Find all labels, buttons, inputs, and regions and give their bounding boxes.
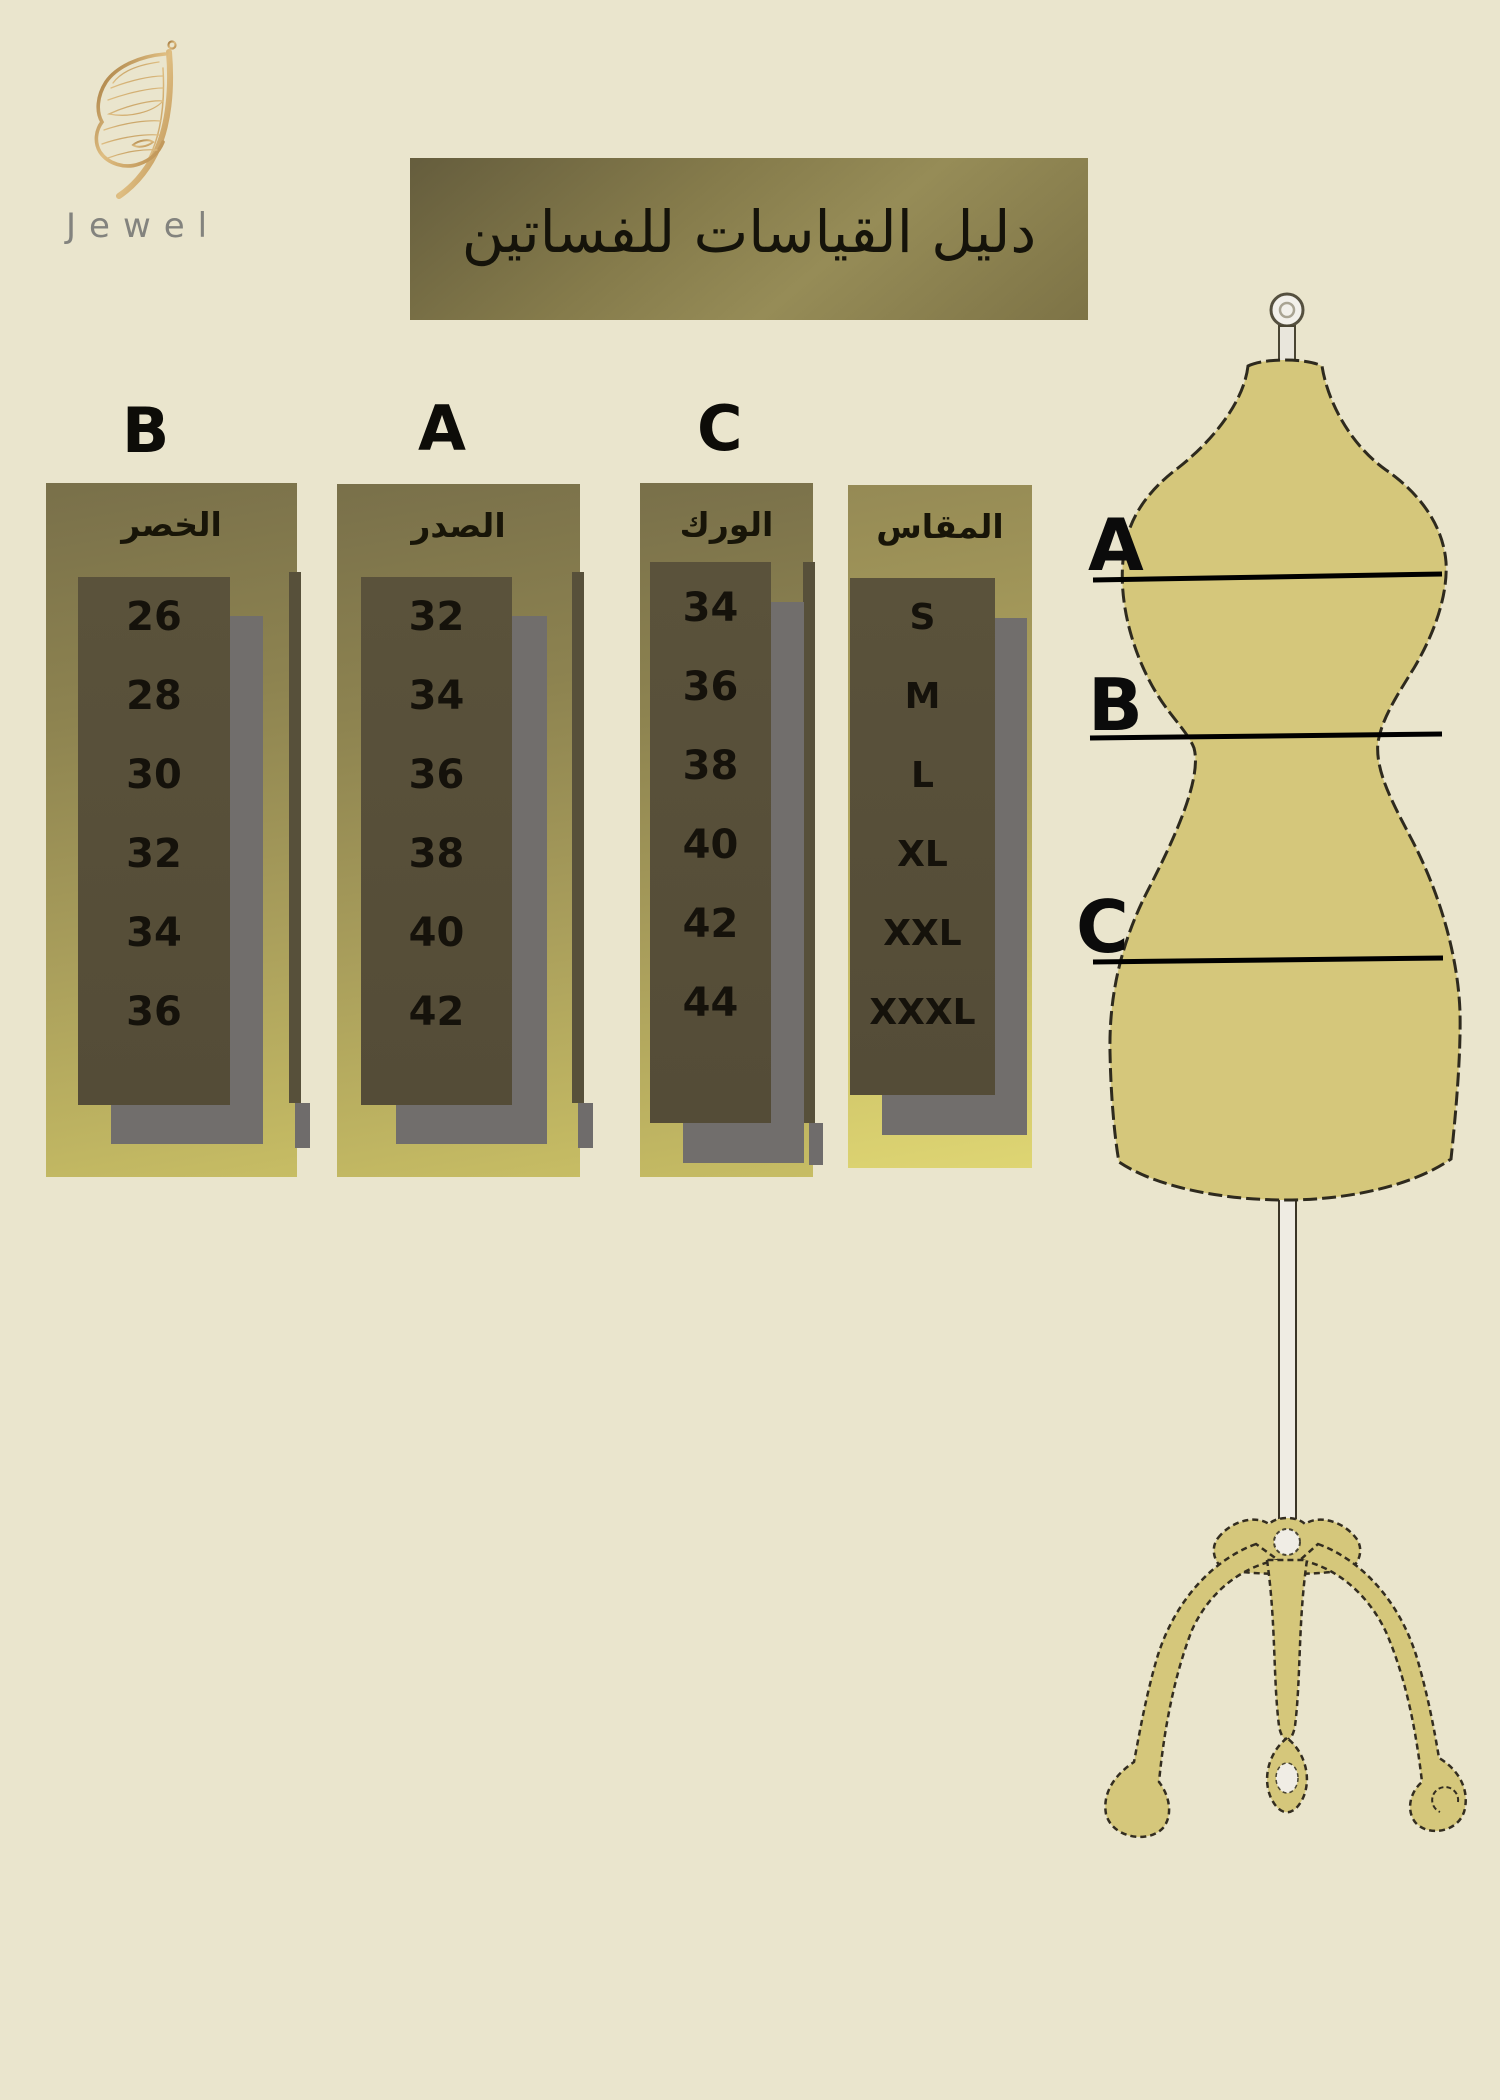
finial-knob-icon	[1271, 294, 1303, 326]
title-banner: دليل القياسات للفساتين	[410, 158, 1088, 320]
size-value: S	[850, 578, 995, 657]
size-value: L	[850, 736, 995, 815]
hip-value: 36	[650, 647, 771, 726]
values-box-size: S M L XL XXL XXXL	[850, 578, 995, 1095]
decor-sliver	[572, 572, 584, 1103]
label-a: A	[1088, 503, 1144, 587]
values-box-bust: 32 34 36 38 40 42	[361, 577, 512, 1105]
waist-value: 32	[78, 814, 230, 893]
waist-value: 36	[78, 972, 230, 1051]
hip-value: 38	[650, 726, 771, 805]
size-value: XL	[850, 815, 995, 894]
stand-pole	[1279, 1185, 1296, 1535]
panel-header-waist: الخصر	[46, 505, 297, 544]
waist-value: 26	[78, 577, 230, 656]
panel-header-bust: الصدر	[337, 506, 580, 545]
values-box-hip: 34 36 38 40 42 44	[650, 562, 771, 1123]
hip-value: 42	[650, 884, 771, 963]
decor-sliver	[295, 1103, 310, 1148]
tripod-leg-left	[1105, 1544, 1278, 1837]
panel-header-hip: الورك	[640, 505, 813, 544]
bust-value: 34	[361, 656, 512, 735]
measurement-panel-waist: الخصر 26 28 30 32 34 36	[46, 483, 297, 1177]
hub-knob	[1274, 1529, 1300, 1555]
measurement-panel-size: المقاس S M L XL XXL XXXL	[848, 485, 1032, 1168]
size-value: XXXL	[850, 973, 995, 1052]
column-letter-a: A	[418, 398, 466, 460]
bust-value: 38	[361, 814, 512, 893]
butterfly-icon	[75, 38, 185, 203]
brand-name: Jewel	[66, 206, 220, 246]
mannequin-illustration: A B C	[1060, 230, 1500, 1900]
bust-value: 40	[361, 893, 512, 972]
waist-value: 30	[78, 735, 230, 814]
bust-value: 36	[361, 735, 512, 814]
bust-value: 42	[361, 972, 512, 1051]
label-b: B	[1088, 663, 1143, 747]
panel-header-size: المقاس	[848, 507, 1032, 546]
label-c: C	[1076, 885, 1129, 969]
waist-value: 28	[78, 656, 230, 735]
measurement-panel-hip: الورك 34 36 38 40 42 44	[640, 483, 813, 1177]
bust-value: 32	[361, 577, 512, 656]
column-letter-c: C	[697, 398, 743, 460]
brand-logo: Jewel	[60, 34, 250, 249]
decor-sliver	[578, 1103, 593, 1148]
hip-value: 44	[650, 963, 771, 1042]
measurement-panel-bust: الصدر 32 34 36 38 40 42	[337, 484, 580, 1177]
decor-sliver	[289, 572, 301, 1103]
decor-sliver	[803, 562, 815, 1123]
values-box-waist: 26 28 30 32 34 36	[78, 577, 230, 1105]
column-letter-b: B	[122, 400, 169, 462]
tripod-leg-center	[1267, 1560, 1307, 1740]
hip-value: 34	[650, 568, 771, 647]
decor-sliver	[809, 1123, 823, 1165]
page-title: دليل القياسات للفساتين	[462, 198, 1036, 280]
size-value: XXL	[850, 894, 995, 973]
hip-value: 40	[650, 805, 771, 884]
waist-value: 34	[78, 893, 230, 972]
mannequin-torso	[1110, 360, 1460, 1200]
size-guide-poster: Jewel دليل القياسات للفساتين B A C الخصر…	[0, 0, 1500, 2100]
size-value: M	[850, 657, 995, 736]
